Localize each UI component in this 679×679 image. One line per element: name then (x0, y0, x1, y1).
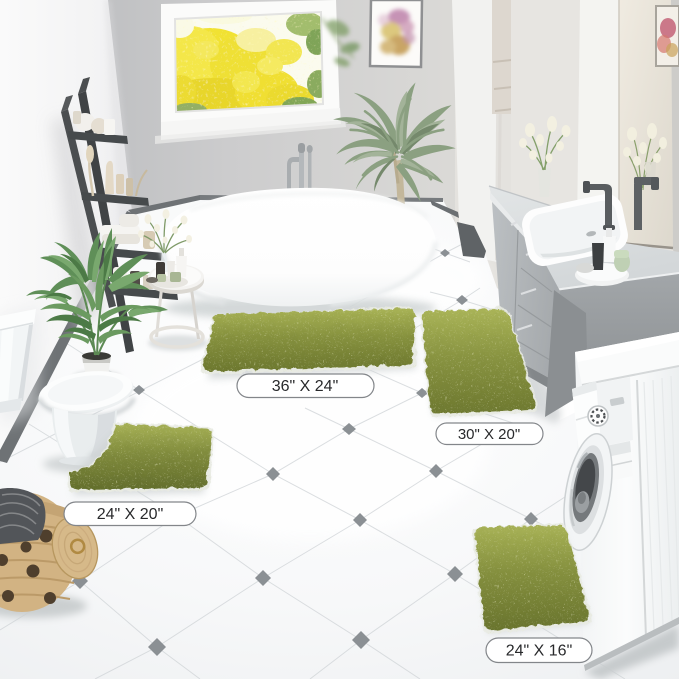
svg-text:24" X 20": 24" X 20" (97, 506, 164, 523)
svg-text:36" X 24": 36" X 24" (272, 378, 339, 395)
svg-text:24" X 16": 24" X 16" (506, 643, 573, 660)
svg-text:30" X 20": 30" X 20" (458, 426, 520, 443)
